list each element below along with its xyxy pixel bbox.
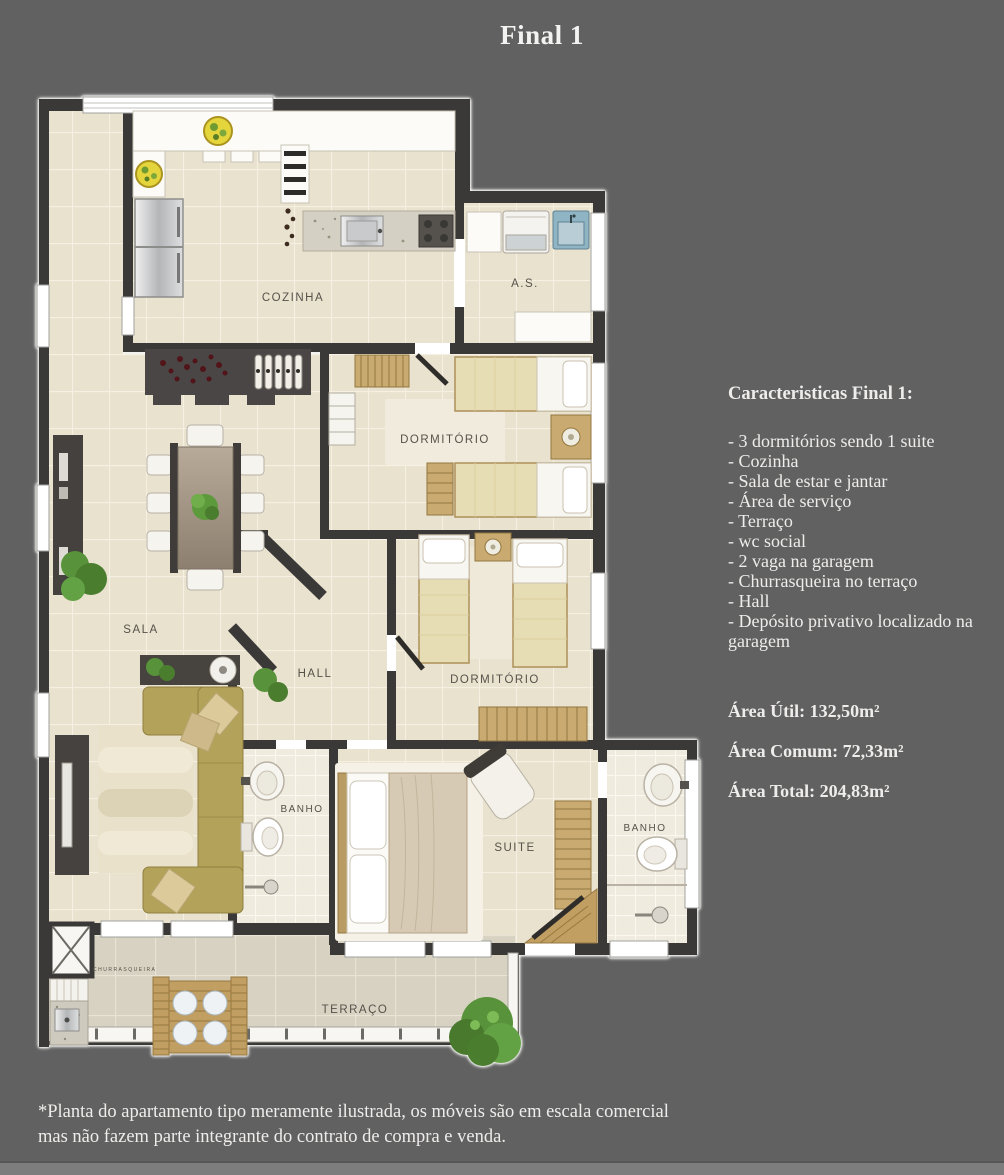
feature-item: - 2 vaga na garagem	[728, 551, 1004, 571]
feature-item: - Área de serviço	[728, 491, 1004, 511]
bottle-rack	[255, 355, 302, 389]
sink-icon	[341, 216, 383, 246]
feature-item: - wc social	[728, 531, 1004, 551]
room-label-banho2: BANHO	[623, 823, 666, 834]
single-bed	[513, 539, 567, 667]
salad-bowl-icon	[204, 117, 232, 145]
bottom-strip	[0, 1161, 1004, 1175]
single-bed	[455, 463, 591, 517]
single-bed	[419, 535, 469, 663]
room-label-as: A.S.	[511, 278, 539, 290]
room-label-suite: SUITE	[494, 842, 535, 854]
terrace-railing	[51, 1027, 516, 1042]
nightstand	[475, 533, 511, 561]
service-counter	[515, 312, 591, 342]
feature-item: - Sala de estar e jantar	[728, 471, 1004, 491]
feature-item: - Hall	[728, 591, 1004, 611]
toilet-icon	[241, 818, 283, 856]
salad-bowl-icon	[136, 161, 162, 187]
fridge-icon	[135, 199, 183, 297]
toilet-icon	[637, 837, 687, 871]
media-console	[140, 655, 240, 685]
feature-item: - Depósito privativo localizado na garag…	[728, 611, 1004, 651]
room-label-churrasqueira: CHURRASQUEIRA	[93, 967, 156, 973]
floorplan-svg: COZINHA A.S.	[35, 95, 700, 1070]
single-bed	[455, 357, 591, 411]
feature-item: - Cozinha	[728, 451, 1004, 471]
area-comum: Área Comum: 72,33m²	[728, 741, 1004, 761]
terrace-table	[153, 977, 247, 1055]
barbecue-area	[50, 979, 88, 1045]
characteristics-heading: Caracteristicas Final 1:	[728, 384, 1004, 404]
room-label-banho1: BANHO	[280, 804, 323, 815]
disclaimer-text: *Planta do apartamento tipo meramente il…	[38, 1100, 693, 1150]
room-label-cozinha: COZINHA	[262, 292, 324, 304]
tv-panel	[55, 735, 89, 875]
kitchen-counter-granite	[303, 211, 455, 251]
utensil-rack	[281, 145, 309, 203]
feature-item: - 3 dormitórios sendo 1 suite	[728, 431, 1004, 451]
wardrobe	[355, 355, 409, 387]
feature-item: - Churrasqueira no terraço	[728, 571, 1004, 591]
area-util: Área Útil: 132,50m²	[728, 701, 1004, 721]
feature-item: - Terraço	[728, 511, 1004, 531]
dresser	[427, 463, 453, 515]
page: Final 1	[0, 0, 1004, 1175]
wardrobe	[479, 707, 587, 741]
room-label-terraco: TERRAÇO	[322, 1004, 389, 1016]
page-title: Final 1	[0, 20, 1004, 51]
washer-icon	[503, 211, 549, 253]
areas-block: Área Útil: 132,50m² Área Comum: 72,33m² …	[728, 701, 1004, 801]
room-label-sala: SALA	[123, 624, 158, 636]
floorplan: COZINHA A.S.	[35, 95, 700, 1070]
room-label-dormitorio2: DORMITÓRIO	[450, 673, 540, 686]
details-panel: Caracteristicas Final 1: - 3 dormitórios…	[728, 384, 1004, 821]
nightstand	[551, 415, 591, 459]
elevator	[50, 924, 92, 976]
stove-icon	[419, 215, 453, 247]
room-label-hall: HALL	[298, 668, 333, 680]
wardrobe	[555, 801, 591, 909]
area-total: Área Total: 204,83m²	[728, 781, 1004, 801]
laundry-tank-icon	[553, 211, 589, 249]
desk	[329, 393, 355, 445]
room-label-dormitorio1: DORMITÓRIO	[400, 433, 490, 446]
double-bed	[338, 773, 467, 933]
features-list: - 3 dormitórios sendo 1 suite - Cozinha …	[728, 431, 1004, 651]
